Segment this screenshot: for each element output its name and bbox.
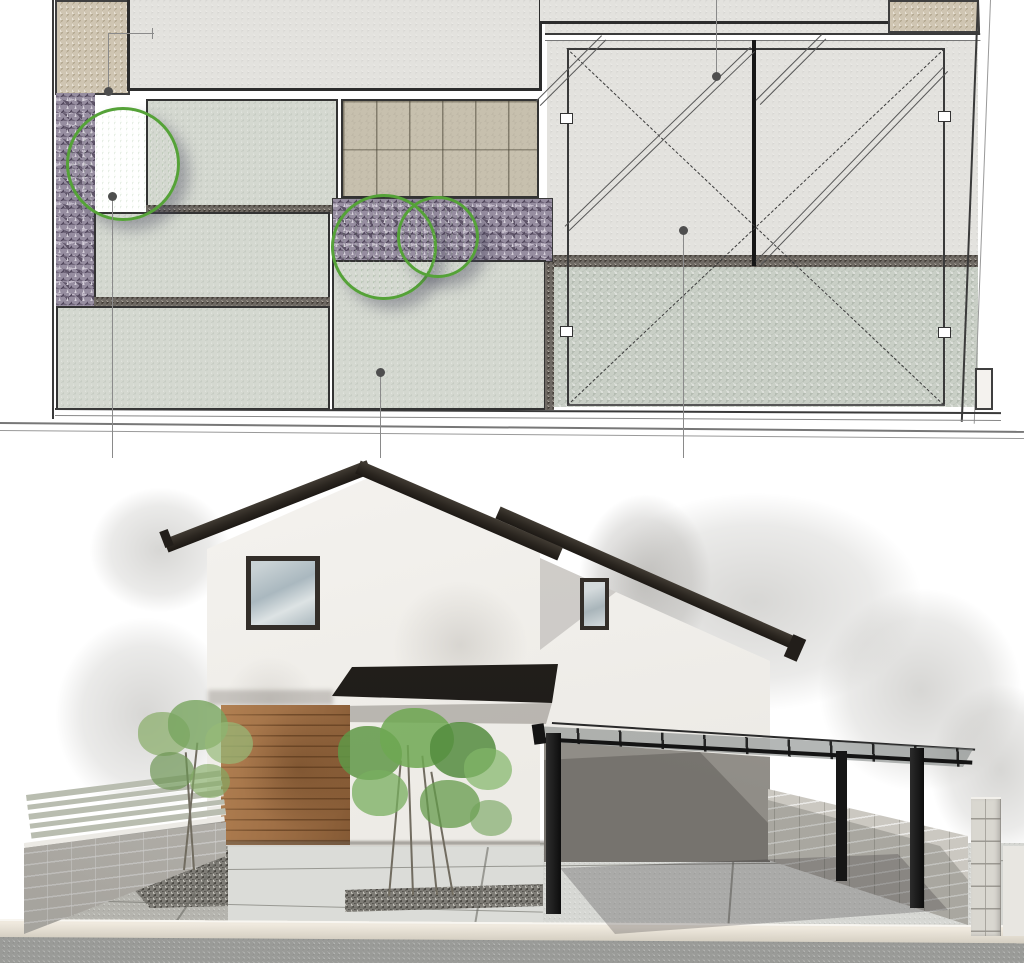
front-elevation-rendering [0, 0, 1024, 963]
tree-foliage [352, 770, 408, 816]
carport-roof-gutter-end [532, 723, 547, 744]
tree-foliage [150, 752, 194, 790]
eave-shadow-band [208, 690, 333, 705]
right-edge-wall [1003, 846, 1024, 936]
slit-window-glass [584, 582, 605, 626]
block-pier-right [971, 797, 1001, 936]
tree-foliage [190, 764, 230, 798]
house-base-shadow [219, 841, 549, 845]
architectural-drawing-sheet [0, 0, 1024, 963]
slit-window [580, 578, 609, 630]
square-window-glass [251, 561, 315, 625]
carport-post-left [546, 733, 561, 914]
tree-foliage [205, 722, 253, 764]
tree-foliage [470, 800, 512, 836]
square-window [246, 556, 320, 630]
carport-post-right-rear [836, 751, 847, 881]
carport-post-right-front [910, 748, 924, 908]
tree-foliage [464, 748, 512, 790]
